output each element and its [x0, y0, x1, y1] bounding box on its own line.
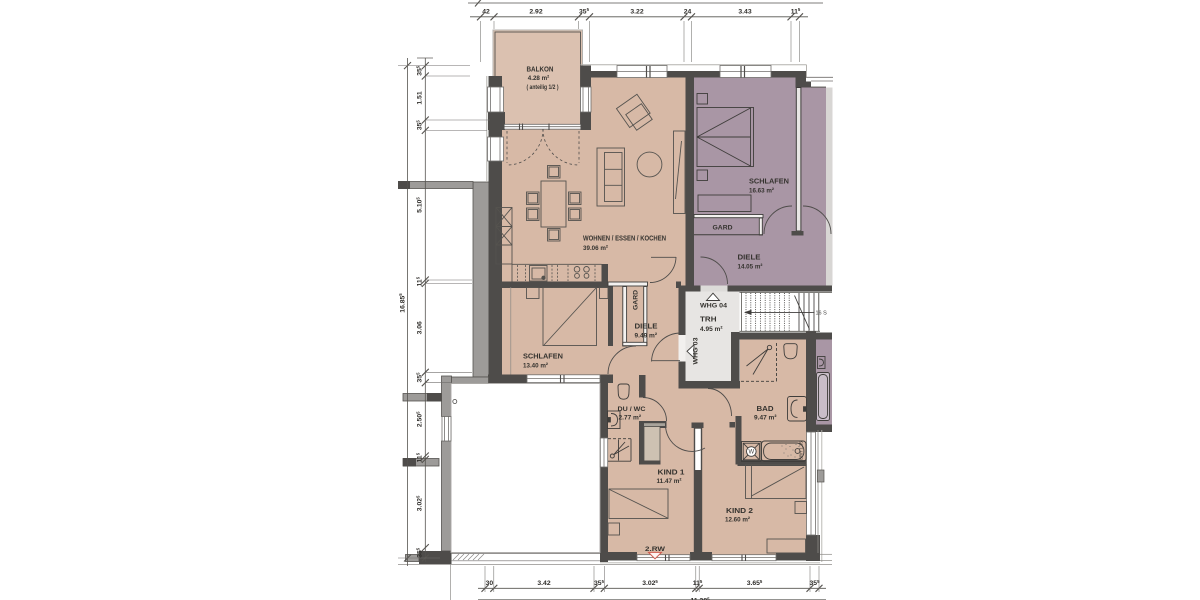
svg-text:WOHNEN / ESSEN / KOCHEN: WOHNEN / ESSEN / KOCHEN [583, 234, 666, 243]
svg-text:4.28 m²: 4.28 m² [528, 75, 550, 82]
svg-text:16 S: 16 S [816, 311, 828, 317]
svg-text:SCHLAFEN: SCHLAFEN [523, 352, 563, 361]
svg-text:BAD: BAD [757, 404, 775, 413]
svg-text:11.285: 11.285 [690, 596, 710, 600]
svg-text:SCHLAFEN: SCHLAFEN [749, 177, 789, 186]
svg-text:W: W [748, 450, 754, 456]
svg-text:9.49 m²: 9.49 m² [635, 333, 658, 340]
svg-text:3.43: 3.43 [738, 8, 751, 15]
svg-text:3.42: 3.42 [537, 580, 550, 587]
svg-text:DIELE: DIELE [635, 322, 658, 331]
svg-text:14.05 m²: 14.05 m² [738, 264, 764, 271]
svg-text:GARD: GARD [713, 225, 734, 232]
svg-text:2.77 m²: 2.77 m² [619, 415, 642, 422]
svg-text:WHG 03: WHG 03 [693, 337, 700, 364]
svg-text:12.60 m²: 12.60 m² [725, 517, 751, 524]
svg-text:BALKON: BALKON [527, 65, 554, 74]
svg-text:9.47 m²: 9.47 m² [754, 415, 777, 422]
svg-text:3.22: 3.22 [630, 8, 643, 15]
svg-text:KIND 1: KIND 1 [658, 468, 685, 477]
svg-text:13.40 m²: 13.40 m² [523, 363, 549, 370]
svg-text:39.06 m²: 39.06 m² [583, 245, 609, 252]
svg-text:30: 30 [486, 580, 494, 587]
svg-text:WHG 04: WHG 04 [700, 303, 727, 310]
svg-text:4.95 m²: 4.95 m² [700, 326, 723, 333]
svg-text:BRH 1.35: BRH 1.35 [799, 441, 804, 460]
svg-text:GARD: GARD [633, 289, 640, 310]
svg-text:TRH: TRH [700, 315, 717, 324]
svg-text:42: 42 [482, 8, 490, 15]
svg-text:1.51: 1.51 [417, 91, 424, 104]
svg-text:2.92: 2.92 [529, 8, 542, 15]
svg-text:3.06: 3.06 [417, 321, 424, 334]
svg-text:DIELE: DIELE [738, 253, 761, 262]
svg-text:24: 24 [684, 8, 692, 15]
svg-text:16.63 m²: 16.63 m² [749, 188, 775, 195]
svg-text:KIND 2: KIND 2 [726, 506, 753, 515]
svg-text:11.47 m²: 11.47 m² [657, 478, 683, 485]
svg-text:16.855: 16.855 [398, 293, 406, 313]
svg-text:2.RW: 2.RW [645, 546, 666, 553]
svg-text:DU / WC: DU / WC [618, 406, 646, 413]
svg-text:( anteilig 1/2 ): ( anteilig 1/2 ) [527, 84, 559, 91]
